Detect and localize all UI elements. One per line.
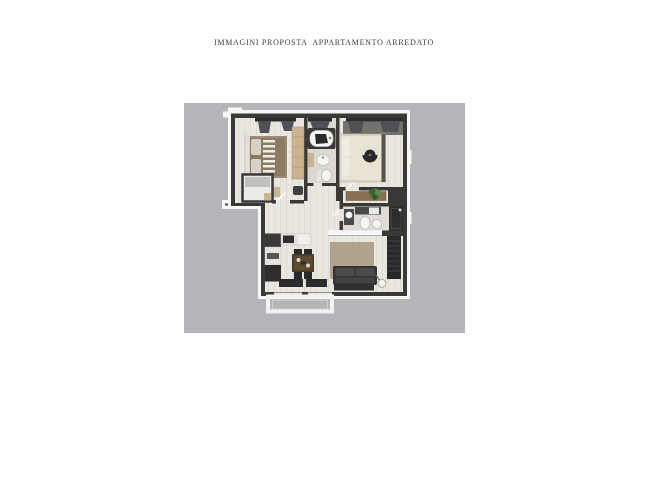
- curtain-pelmet: [308, 118, 332, 122]
- double-bed-1: [245, 136, 287, 178]
- pillow: [251, 139, 261, 155]
- sofa: [333, 266, 377, 285]
- chair: [304, 272, 312, 279]
- roof-edge: [228, 108, 242, 113]
- doormat: [279, 279, 303, 287]
- walk-in-closet: [243, 175, 273, 202]
- bathroom-1: [308, 118, 337, 184]
- curtain-icon: [380, 121, 400, 132]
- toilet-2: [373, 220, 382, 229]
- curtain-pelmet: [346, 118, 403, 122]
- stove: [265, 265, 281, 282]
- ceiling-fan: [363, 148, 378, 163]
- pillow: [342, 158, 350, 176]
- window-sill-right-1: [407, 150, 412, 164]
- curtain-icon: [258, 121, 271, 133]
- window-sill-right-2: [407, 212, 412, 224]
- cushion: [356, 268, 375, 276]
- half-wall: [328, 230, 382, 236]
- hob: [283, 236, 294, 244]
- page-title: IMMAGINI PROPOSTA APPARTAMENTO ARREDATO: [0, 38, 648, 47]
- chair: [294, 272, 302, 279]
- doormat: [334, 285, 374, 291]
- cushion: [336, 268, 355, 276]
- wardrobe: [292, 127, 304, 179]
- doormat: [306, 279, 327, 287]
- render-panel: [184, 103, 465, 333]
- curtain-icon: [310, 121, 330, 129]
- sink-unit: [298, 235, 310, 245]
- toilet-1: [317, 170, 332, 182]
- cabinet: [388, 191, 403, 204]
- curtain-pelmet: [255, 118, 296, 122]
- closet-door: [264, 193, 271, 201]
- pillow: [342, 138, 350, 156]
- towels: [315, 134, 328, 144]
- media-wall: [387, 236, 401, 279]
- pillow: [251, 159, 261, 175]
- bathroom-2: [343, 207, 403, 231]
- armchair: [293, 186, 303, 195]
- bathtub: [308, 128, 336, 149]
- vanity-2: [344, 209, 354, 225]
- entry-door-mark: [225, 204, 228, 206]
- floorplan-render: [184, 103, 465, 333]
- tall-units: [265, 234, 281, 248]
- washbasin-2: [360, 217, 370, 230]
- washing-machine: [369, 208, 379, 215]
- double-bed-2: [340, 134, 386, 182]
- shower: [389, 207, 403, 231]
